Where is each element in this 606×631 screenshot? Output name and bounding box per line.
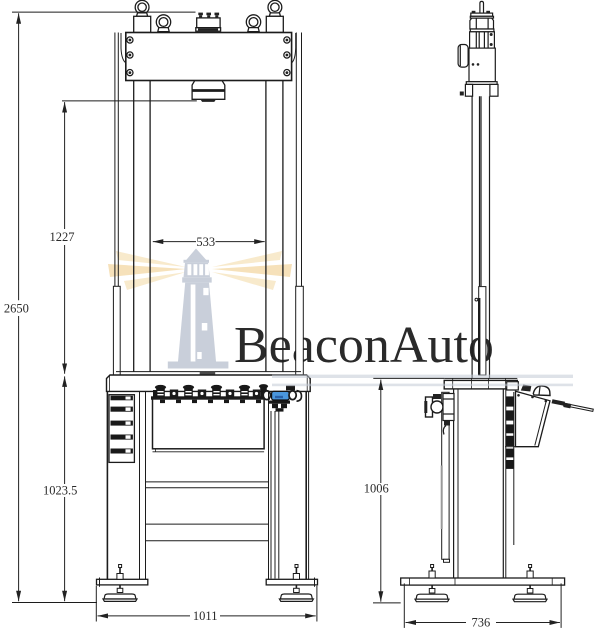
svg-text:533: 533	[196, 235, 215, 249]
svg-text:736: 736	[472, 616, 491, 630]
svg-text:BeaconAuto: BeaconAuto	[234, 317, 494, 374]
svg-text:1006: 1006	[364, 482, 389, 496]
svg-text:1227: 1227	[50, 230, 75, 244]
svg-text:2650: 2650	[4, 302, 29, 316]
svg-text:1023.5: 1023.5	[43, 484, 77, 498]
svg-text:1011: 1011	[193, 609, 218, 623]
